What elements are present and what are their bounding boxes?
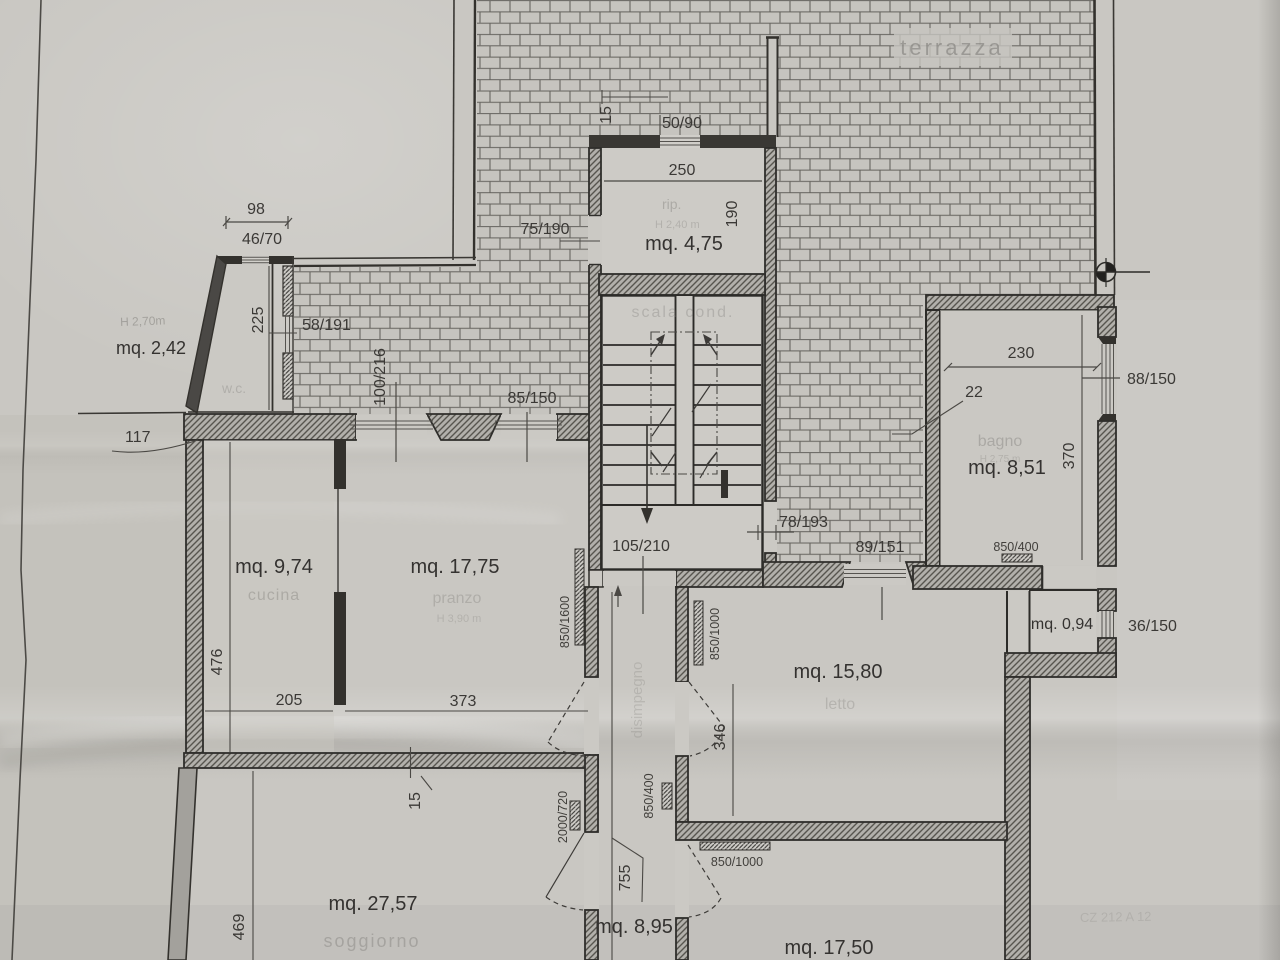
svg-text:85/150: 85/150 <box>508 390 557 407</box>
svg-text:205: 205 <box>276 692 303 709</box>
svg-text:H 2,70m: H 2,70m <box>120 313 166 329</box>
svg-text:mq. 15,80: mq. 15,80 <box>794 661 883 683</box>
svg-text:850/1000: 850/1000 <box>711 855 763 869</box>
svg-text:850/400: 850/400 <box>642 773 656 818</box>
svg-text:50/90: 50/90 <box>662 115 702 132</box>
svg-text:370: 370 <box>1061 443 1078 470</box>
svg-text:58/191: 58/191 <box>302 317 351 334</box>
svg-text:mq. 9,74: mq. 9,74 <box>235 556 313 578</box>
svg-text:disimpegno: disimpegno <box>629 662 646 739</box>
svg-text:88/150: 88/150 <box>1127 371 1176 388</box>
svg-text:soggiorno: soggiorno <box>323 931 420 951</box>
svg-text:469: 469 <box>231 914 248 941</box>
svg-text:755: 755 <box>617 865 634 892</box>
svg-text:105/210: 105/210 <box>612 538 670 555</box>
svg-text:46/70: 46/70 <box>242 231 282 248</box>
svg-text:346: 346 <box>712 724 729 751</box>
svg-text:36/150: 36/150 <box>1128 618 1177 635</box>
svg-text:H 3,90 m: H 3,90 m <box>437 613 482 625</box>
svg-text:letto: letto <box>825 696 855 713</box>
svg-text:mq. 8,95: mq. 8,95 <box>595 916 673 938</box>
svg-text:850/400: 850/400 <box>993 540 1038 554</box>
svg-text:H 2,40 m: H 2,40 m <box>655 219 700 231</box>
svg-text:2000/720: 2000/720 <box>556 791 570 843</box>
svg-text:mq. 2,42: mq. 2,42 <box>116 338 186 358</box>
svg-text:scala cond.: scala cond. <box>632 304 735 321</box>
svg-text:mq. 4,75: mq. 4,75 <box>645 233 723 255</box>
svg-text:pranzo: pranzo <box>433 590 482 607</box>
svg-text:mq. 17,50: mq. 17,50 <box>785 937 874 959</box>
svg-text:CZ 212 A 12: CZ 212 A 12 <box>1080 909 1152 925</box>
svg-text:373: 373 <box>450 693 477 710</box>
svg-text:mq. 27,57: mq. 27,57 <box>329 893 418 915</box>
svg-text:850/1600: 850/1600 <box>558 596 572 648</box>
svg-text:117: 117 <box>125 429 151 446</box>
svg-text:250: 250 <box>669 162 696 179</box>
svg-text:100/216: 100/216 <box>372 348 389 406</box>
svg-text:mq. 17,75: mq. 17,75 <box>411 556 500 578</box>
svg-text:rip.: rip. <box>662 196 681 212</box>
svg-text:terrazza: terrazza <box>900 35 1003 60</box>
svg-text:190: 190 <box>724 201 741 228</box>
svg-text:89/151: 89/151 <box>856 539 905 556</box>
svg-text:15: 15 <box>407 792 424 810</box>
svg-text:230: 230 <box>1008 345 1035 362</box>
svg-text:15: 15 <box>598 106 615 124</box>
svg-text:225: 225 <box>250 307 267 334</box>
svg-text:mq. 0,94: mq. 0,94 <box>1031 616 1093 633</box>
svg-text:22: 22 <box>965 384 983 401</box>
svg-text:cucina: cucina <box>248 587 300 604</box>
svg-text:mq. 8,51: mq. 8,51 <box>968 457 1046 479</box>
svg-text:78/193: 78/193 <box>779 514 828 531</box>
svg-text:850/1000: 850/1000 <box>708 608 722 660</box>
svg-text:w.c.: w.c. <box>221 380 246 396</box>
svg-text:bagno: bagno <box>978 433 1023 450</box>
svg-text:476: 476 <box>209 649 226 676</box>
svg-text:75/190: 75/190 <box>521 221 570 238</box>
svg-text:98: 98 <box>247 201 265 218</box>
